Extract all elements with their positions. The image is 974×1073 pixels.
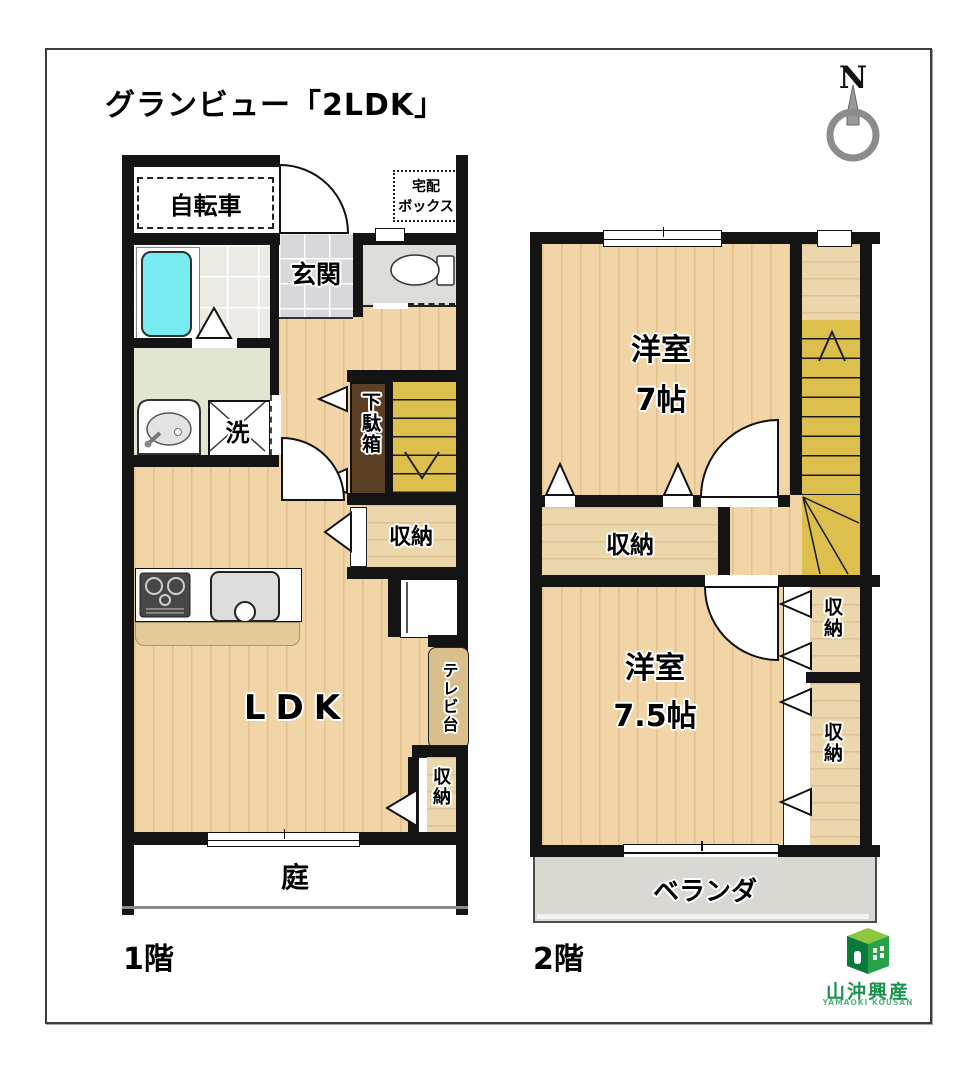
kitchen-sink-drain-icon	[234, 601, 256, 623]
storage-ldk-label: 収納	[427, 767, 453, 807]
north-compass-icon: N	[812, 55, 904, 167]
entrance-door-swing-icon	[280, 165, 349, 234]
closet-door-triangle-icon	[545, 462, 575, 497]
storage-ldk-triangle-icon	[386, 788, 418, 828]
room7-label-line2: 7帖	[596, 375, 726, 419]
floor2-plan: 洋室 7帖 収納 洋室 7.5帖 収納 収納	[530, 225, 880, 925]
room75-label-line2: 7.5帖	[580, 691, 730, 735]
storage-hall-label: 収納	[590, 525, 670, 560]
floor2-right-wall	[860, 232, 872, 857]
tv-stand-label: テレビ台	[437, 662, 461, 734]
toilet-left-wall	[353, 233, 363, 317]
page-title: グランビュー「2LDK」	[105, 80, 445, 124]
storage-upper-label: 収納	[819, 597, 846, 639]
window-tick	[284, 829, 286, 839]
equipment-left-wall	[388, 567, 400, 637]
veranda-label: ベランダ	[650, 871, 760, 908]
floor1-left-wall	[122, 155, 134, 915]
stove-icon	[140, 573, 190, 617]
floor1-plan: 洗 玄関 自転車 宅配 ボックス	[122, 155, 468, 920]
equipment-box-line	[406, 582, 408, 633]
storage-under-stairs-label: 収納	[367, 519, 455, 551]
garden-label: 庭	[250, 856, 340, 896]
delivery-box-label-2: ボックス	[398, 196, 454, 216]
porch-bottom-wall	[122, 233, 280, 245]
stairs-up-arrow-icon	[817, 328, 847, 364]
company-logo: 山沖興産 YAMAOKI KOUSAN	[812, 925, 924, 1010]
closet-door-triangle-icon	[663, 462, 693, 497]
window-tick	[701, 841, 703, 851]
toilet-icon	[387, 253, 457, 293]
room75-door-opening	[705, 575, 778, 587]
storage-door-track	[350, 507, 367, 567]
storage-lower-label: 収納	[819, 722, 846, 764]
window-mid-line	[208, 840, 359, 842]
shoe-cabinet: 下駄箱	[350, 382, 389, 497]
stairs-down-arrow-icon	[401, 450, 443, 482]
tv-stand-top-wall	[428, 635, 468, 647]
genkan-label: 玄関	[281, 255, 351, 291]
stairs-bottom-wall	[347, 493, 468, 505]
tv-stand: テレビ台	[428, 647, 469, 749]
delivery-box-label-1: 宅配	[412, 176, 440, 196]
floor1-right-wall	[456, 155, 468, 915]
room7-stairs-wall	[790, 244, 802, 495]
closet-divider-wall	[806, 672, 860, 683]
closet-door-triangle-icon	[780, 787, 812, 817]
storage-door-triangle-icon	[324, 511, 352, 553]
porch-top-wall	[122, 155, 280, 167]
washroom-door-slide	[270, 395, 281, 455]
stair-landing	[802, 244, 860, 320]
washer-label: 洗	[210, 413, 265, 448]
kitchen-counter-table	[135, 622, 300, 646]
closet-door-triangle-icon	[780, 589, 812, 619]
shoe-cabinet-label: 下駄箱	[357, 392, 384, 455]
ldk-label: LDK	[217, 688, 377, 728]
stairwell-window	[817, 230, 852, 247]
veranda-sill	[537, 914, 869, 919]
toilet-door-opening	[373, 303, 408, 309]
room7-window	[603, 230, 722, 247]
floor1-caption: 1階	[123, 934, 174, 978]
ldk-window	[207, 832, 360, 847]
closet-door-triangle-icon	[780, 641, 812, 671]
toilet-top-wall	[353, 233, 468, 245]
room7-label-line1: 洋室	[596, 325, 726, 369]
toilet-window	[375, 228, 405, 242]
closet-door-triangle-icon	[780, 687, 812, 717]
room7-door-swing-icon	[701, 420, 779, 498]
floor2-left-wall	[530, 232, 542, 857]
bicycle-label: 自転車	[170, 186, 242, 221]
window-tick	[663, 227, 665, 237]
garden-bottom-line	[122, 906, 468, 909]
floorplan-page: グランビュー「2LDK」 N 洗	[0, 0, 974, 1073]
bicycle-area: 自転車	[137, 177, 274, 229]
delivery-box: 宅配 ボックス	[393, 170, 459, 222]
company-logo-cube-icon	[846, 927, 891, 977]
storage-lower-floor	[810, 683, 860, 845]
washer-pan: 洗	[208, 400, 271, 457]
bathtub-icon	[141, 251, 192, 337]
washroom-right-wall	[270, 233, 279, 395]
hall-door-triangle-icon	[318, 386, 348, 412]
stairs-top-wall	[347, 370, 468, 382]
ldk-door-swing-icon	[282, 438, 345, 501]
equipment-box	[400, 579, 458, 638]
tv-stand-bottom-wall	[412, 745, 468, 757]
stairs-winder-lines-icon	[802, 495, 860, 575]
storage-hall-right-wall	[718, 507, 730, 575]
room75-label-line1: 洋室	[590, 643, 720, 687]
washroom-bottom-wall	[122, 455, 279, 467]
bathroom-door-triangle-icon	[196, 306, 232, 340]
toilet-vent-dashed	[408, 303, 455, 305]
floor2-caption: 2階	[533, 934, 584, 978]
storage-bottom-wall	[347, 567, 468, 579]
vanity-sink-icon	[136, 398, 202, 455]
shoe-cabinet-right-wall	[385, 382, 393, 493]
window-mid-line	[624, 852, 778, 854]
window-mid-line	[604, 239, 721, 241]
company-romaji: YAMAOKI KOUSAN	[812, 998, 924, 1007]
